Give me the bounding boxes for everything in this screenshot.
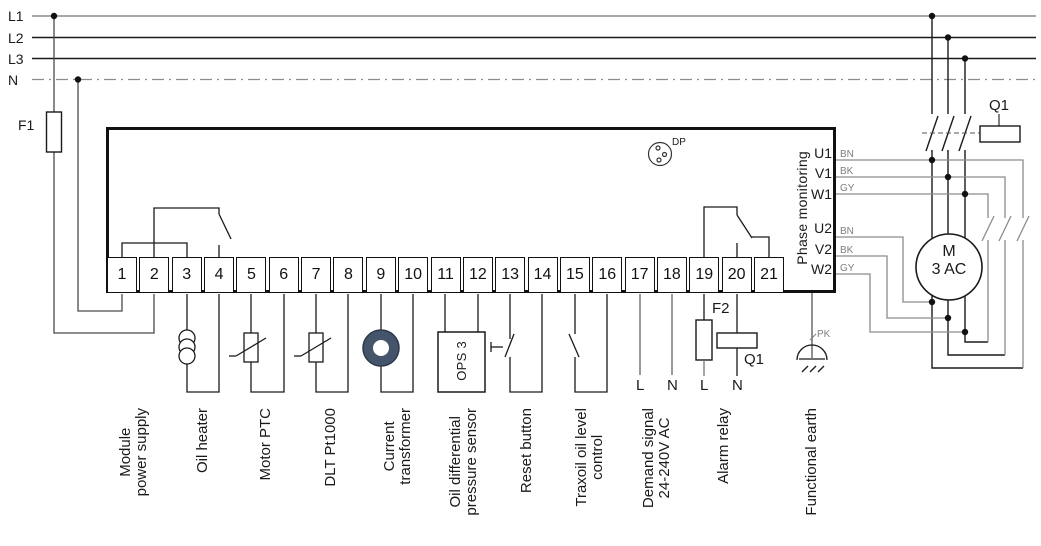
f1-branch [47, 16, 155, 333]
terminal-17: 17 [625, 257, 655, 293]
terminal-10: 10 [398, 257, 428, 293]
motor-ptc-symbol [229, 294, 284, 392]
terminal20-wire-label: N [732, 377, 743, 394]
label-oil-heater: Oil heater [195, 408, 211, 473]
rail-label-l3: L3 [8, 51, 24, 67]
alarm-relay-symbol [704, 207, 769, 257]
dp-connector [649, 143, 672, 166]
motor-letter: M [921, 243, 977, 261]
terminal18-wire-label: N [667, 377, 678, 394]
wire-color-label-bn2: BN [840, 226, 854, 237]
f1-label: F1 [18, 117, 34, 133]
f1-fuse [47, 112, 62, 152]
pm-terminal-w1: W1 [806, 186, 832, 202]
traxoil-switch-symbol [569, 294, 607, 392]
dp-label: DP [672, 137, 686, 148]
wire-color-label-bk2: BK [840, 245, 853, 256]
pm-terminal-u2: U2 [806, 220, 832, 236]
ops3-label: OPS 3 [454, 341, 469, 381]
label-module-power-supply: Modulepower supply [118, 408, 150, 496]
reset-button-symbol [491, 294, 542, 392]
terminal19-wire-label: L [700, 377, 708, 394]
f2-label: F2 [712, 300, 730, 317]
wire-color-label-gy1: GY [840, 183, 854, 194]
f2-fuse [696, 294, 712, 376]
right-contact-set [982, 216, 1029, 241]
rail-label-l2: L2 [8, 30, 24, 46]
label-motor-ptc: Motor PTC [258, 408, 274, 481]
current-transformer-symbol [363, 294, 413, 392]
q1-contactor [922, 16, 1020, 151]
oil-heater-symbol [179, 294, 219, 392]
terminal-5: 5 [236, 257, 266, 293]
terminal-21: 21 [754, 257, 784, 293]
terminal-14: 14 [528, 257, 558, 293]
rail-label-n: N [8, 72, 18, 88]
q1-coil-box [980, 126, 1020, 142]
terminal-4: 4 [204, 257, 234, 293]
terminal-18: 18 [657, 257, 687, 293]
demand-signal-wires [640, 294, 672, 375]
terminal-8: 8 [333, 257, 363, 293]
label-alarm-relay: Alarm relay [716, 408, 732, 484]
label-reset-button: Reset button [519, 408, 535, 493]
label-dlt-pt1000: DLT Pt1000 [323, 408, 339, 487]
terminal-9: 9 [366, 257, 396, 293]
pm-terminal-w2: W2 [806, 261, 832, 277]
label-functional-earth: Functional earth [804, 408, 820, 516]
q1-coil-label: Q1 [744, 351, 764, 368]
terminal-6: 6 [269, 257, 299, 293]
pm-terminal-v1: V1 [806, 165, 832, 181]
label-traxoil-oil-level-control: Traxoil oil levelcontrol [574, 408, 606, 507]
wiring-diagram: 123456789101112131415161718192021 L1 L2 … [0, 0, 1041, 546]
terminal17-wire-label: L [636, 377, 644, 394]
motor-type: 3 AC [921, 261, 977, 279]
terminal-16: 16 [592, 257, 622, 293]
terminal-3: 3 [172, 257, 202, 293]
terminal-13: 13 [495, 257, 525, 293]
terminal-11: 11 [431, 257, 461, 293]
q1-contactor-label: Q1 [989, 97, 1009, 114]
terminal-2: 2 [139, 257, 169, 293]
wire-color-label-gy2: GY [840, 263, 854, 274]
pm-terminal-u1: U1 [806, 145, 832, 161]
label-demand-signal: Demand signal24-240V AC [641, 408, 673, 508]
pk-wire-label: PK [817, 329, 830, 340]
terminal-7: 7 [301, 257, 331, 293]
terminal-19: 19 [689, 257, 719, 293]
rail-label-l1: L1 [8, 8, 24, 24]
dlt-pt1000-symbol [294, 294, 348, 392]
label-oil-differential-pressure-sensor: Oil differentialpressure sensor [448, 408, 480, 516]
terminal-12: 12 [463, 257, 493, 293]
wire-color-label-bn1: BN [840, 149, 854, 160]
wire-color-label-bk1: BK [840, 166, 853, 177]
terminal-1: 1 [107, 257, 137, 293]
terminal-20: 20 [722, 257, 752, 293]
pm-terminal-v2: V2 [806, 241, 832, 257]
label-current-transformer: Currenttransformer [382, 408, 414, 485]
power-relay-symbol [122, 208, 231, 257]
power-rails [32, 16, 1036, 80]
terminal-15: 15 [560, 257, 590, 293]
